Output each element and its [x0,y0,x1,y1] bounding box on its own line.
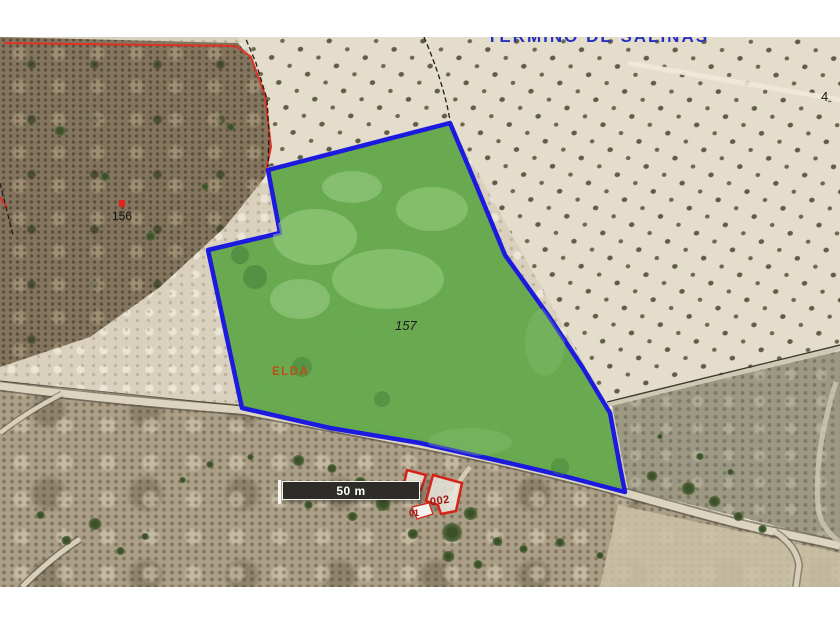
parcel-right-edge-label: 4 [821,89,828,104]
scale-bar-label: 50 m [336,484,365,498]
tree-blob [733,512,744,521]
map-title: TERMINO DE SALINAS [487,37,709,47]
tree-blob [327,464,337,473]
tree-blob [473,560,483,569]
tree-blob [100,172,110,181]
tree-blob [708,496,721,507]
parcel-156-label: 156 [112,209,132,223]
tree-blob [696,453,704,460]
tree-blob [463,507,478,520]
map-image: TERMINO DE SALINAS 156 157 ELDA 4 002 01… [0,37,840,587]
tree-blob [519,545,528,553]
tree-blob [758,525,767,533]
tree-blob [247,454,254,460]
tree-blob [492,537,503,546]
tree-blob [441,523,463,542]
tree-blob [347,512,358,521]
municipality-elda-label: ELDA [272,366,309,378]
tree-blob [407,529,419,539]
tree-blob [226,123,235,131]
tree-blob [36,511,45,519]
tree-blob [555,538,565,547]
tree-blob [727,469,734,475]
tree-blob [116,547,125,555]
tree-blob [646,471,658,481]
tree-blob [88,518,102,530]
tree-blob [201,183,209,190]
tree-blob [145,232,156,241]
tree-blob [442,551,455,562]
scattered-trees [0,37,840,587]
tree-blob [141,533,149,540]
tree-blob [54,126,66,136]
tree-blob [206,461,214,468]
parcel-156-marker-dot [119,200,125,207]
tree-blob [292,455,305,466]
scale-bar: 50 m [282,481,420,500]
building-01-label: 01 [409,508,419,518]
tree-blob [657,434,663,439]
tree-blob [179,477,186,483]
tree-blob [681,482,696,495]
tree-blob [304,501,313,509]
tree-blob [596,552,604,559]
tree-blob [61,536,72,545]
cadastral-aerial-map[interactable]: TERMINO DE SALINAS 156 157 ELDA 4 002 01… [0,0,840,630]
parcel-157-label: 157 [395,318,417,333]
